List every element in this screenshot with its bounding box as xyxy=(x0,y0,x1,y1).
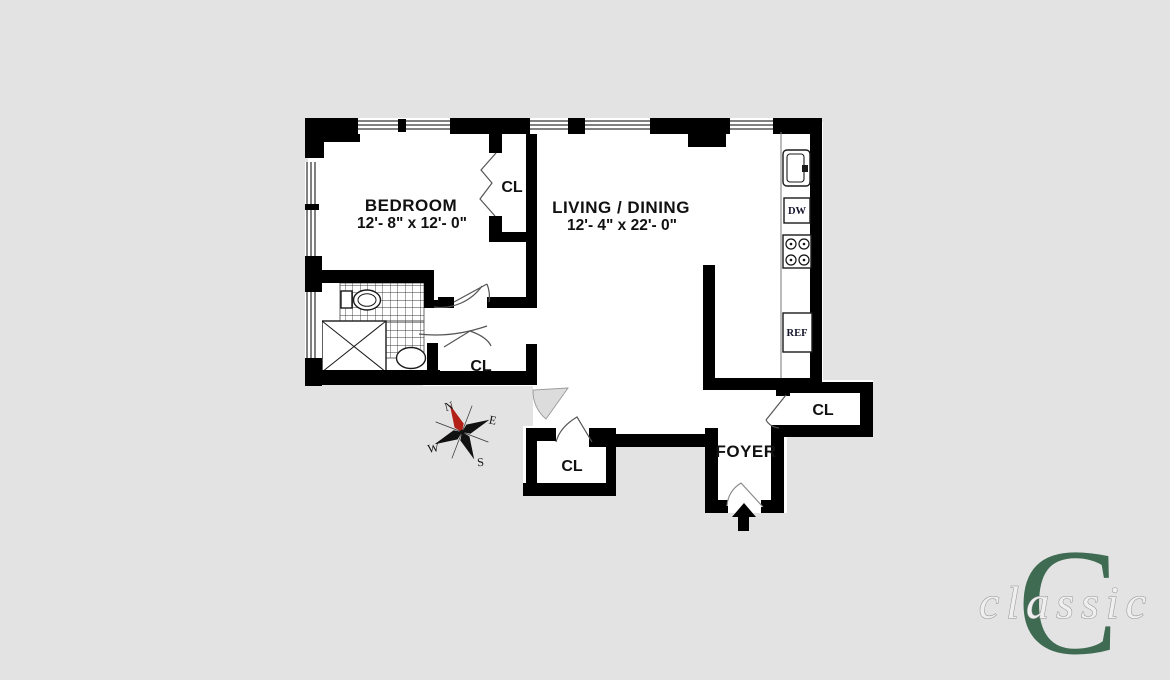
kitchen-sink xyxy=(783,150,810,186)
bathtub xyxy=(322,321,386,372)
stove xyxy=(783,235,811,268)
bedroom-label: BEDROOM xyxy=(365,196,457,215)
window-top-4 xyxy=(730,118,773,134)
window-bedroom-left xyxy=(305,162,322,256)
refrigerator-label: REF xyxy=(787,328,808,339)
kitchen-strip: DW REF xyxy=(781,132,812,378)
dishwasher: DW xyxy=(784,198,810,223)
floorplan-canvas: DW REF xyxy=(0,0,1170,680)
bathroom-sink xyxy=(397,348,426,369)
window-top-3 xyxy=(585,118,650,134)
foyer-label: FOYER xyxy=(715,442,776,461)
bedroom-closet-label: CL xyxy=(501,179,523,196)
bedroom-dims: 12'- 8" x 12'- 0" xyxy=(357,215,467,232)
toilet xyxy=(341,290,381,310)
foyer-closet-label: CL xyxy=(812,402,834,419)
entry-closet-label: CL xyxy=(561,458,583,475)
hall-closet-label: CL xyxy=(470,358,492,375)
window-top-1 xyxy=(358,118,450,134)
window-top-2 xyxy=(530,118,568,134)
living-floor xyxy=(533,122,823,390)
living-dims: 12'- 4" x 22'- 0" xyxy=(567,217,677,234)
window-bathroom-left xyxy=(305,292,322,358)
refrigerator: REF xyxy=(783,313,812,352)
pilaster xyxy=(688,132,726,147)
dishwasher-label: DW xyxy=(788,206,807,217)
living-label: LIVING / DINING xyxy=(552,198,690,217)
logo-wordmark: classic xyxy=(979,577,1153,628)
